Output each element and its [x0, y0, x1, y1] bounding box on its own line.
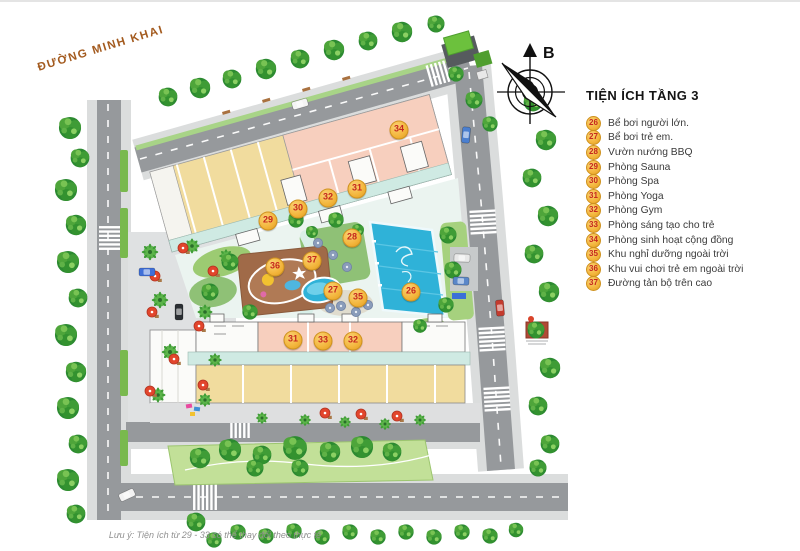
- tree-icon: [426, 529, 441, 544]
- car-icon: [175, 304, 183, 320]
- tree-icon: [223, 70, 242, 89]
- tree-icon: [466, 92, 483, 109]
- legend-label: Phòng sinh hoạt cộng đồng: [608, 235, 733, 246]
- blue-sign: [452, 293, 466, 299]
- tree-icon: [219, 439, 241, 461]
- legend-label: Vườn nướng BBQ: [608, 147, 693, 158]
- tree-icon: [392, 22, 412, 42]
- tree-icon: [159, 88, 178, 107]
- tree-icon: [445, 262, 462, 279]
- legend-badge-27: 27: [586, 130, 601, 145]
- legend-item-32: 32 Phòng Gym: [586, 204, 798, 219]
- legend-item-31: 31 Phòng Yoga: [586, 189, 798, 204]
- palm-tree-icon: [198, 305, 213, 320]
- tree-icon: [288, 212, 303, 227]
- adult-pool: [370, 222, 445, 316]
- tree-icon: [528, 322, 545, 339]
- legend-badge-32: 32: [586, 203, 601, 218]
- blue-umbrella-icon: [336, 301, 345, 310]
- tree-icon: [57, 251, 79, 273]
- legend-badge-31: 31: [586, 189, 601, 204]
- tree-icon: [523, 169, 542, 188]
- tree-icon: [482, 528, 497, 543]
- legend-badge-26: 26: [586, 116, 601, 131]
- tree-icon: [359, 32, 378, 51]
- legend-item-36: 36 Khu vui chơi trẻ em ngoài trời: [586, 262, 798, 277]
- legend-label: Bể bơi người lớn.: [608, 118, 689, 129]
- car-icon: [139, 268, 155, 276]
- tree-icon: [69, 435, 88, 454]
- tree-icon: [55, 179, 77, 201]
- tree-icon: [306, 226, 318, 238]
- legend-item-27: 27 Bể bơi trẻ em.: [586, 131, 798, 146]
- tree-icon: [530, 460, 547, 477]
- median-strip: [120, 208, 128, 258]
- blue-umbrella-icon: [308, 256, 317, 265]
- legend-badge-33: 33: [586, 218, 601, 233]
- legend-label: Đường tản bộ trên cao: [608, 278, 712, 289]
- tree-icon: [509, 523, 523, 537]
- blue-umbrella-icon: [363, 300, 372, 309]
- tree-icon: [69, 289, 88, 308]
- legend-item-29: 29 Phòng Sauna: [586, 160, 798, 175]
- tree-icon: [55, 324, 77, 346]
- legend-badge-29: 29: [586, 160, 601, 175]
- car-icon: [454, 254, 470, 263]
- tree-icon: [383, 443, 402, 462]
- palm-tree-icon: [198, 393, 212, 407]
- blue-umbrella-icon: [344, 237, 353, 246]
- tree-icon: [454, 524, 469, 539]
- tree-icon: [351, 436, 373, 458]
- legend-label: Khu nghỉ dưỡng ngoài trời: [608, 249, 729, 260]
- tree-icon: [283, 436, 307, 460]
- legend-item-28: 28 Vườn nướng BBQ: [586, 145, 798, 160]
- tree-icon: [438, 297, 453, 312]
- tree-icon: [482, 116, 497, 131]
- tree-icon: [190, 448, 210, 468]
- tree-icon: [525, 245, 544, 264]
- tree-icon: [540, 358, 560, 378]
- legend-item-34: 34 Phòng sinh hoạt cộng đồng: [586, 233, 798, 248]
- legend-item-33: 33 Phòng sáng tạo cho trẻ: [586, 218, 798, 233]
- footer-note: Lưu ý: Tiện ích từ 29 - 33 có thể thay đ…: [70, 530, 360, 540]
- legend-label: Phòng Yoga: [608, 191, 664, 202]
- tree-icon: [440, 227, 457, 244]
- median-strip: [120, 430, 128, 466]
- site-plan-map: [0, 0, 580, 551]
- blue-umbrella-icon: [313, 238, 322, 247]
- tree-icon: [320, 442, 340, 462]
- palm-tree-icon: [152, 292, 169, 309]
- legend-label: Phòng sáng tạo cho trẻ: [608, 220, 714, 231]
- legend-badge-37: 37: [586, 276, 601, 291]
- tree-icon: [370, 529, 385, 544]
- legend-badge-28: 28: [586, 145, 601, 160]
- legend-badge-34: 34: [586, 233, 601, 248]
- legend-item-35: 35 Khu nghỉ dưỡng ngoài trời: [586, 247, 798, 262]
- palm-tree-icon: [414, 414, 426, 426]
- legend-label: Bể bơi trẻ em.: [608, 132, 673, 143]
- legend-panel: TIỆN ÍCH TẦNG 3 26 Bể bơi người lớn. 27 …: [586, 88, 798, 291]
- tree-icon: [66, 362, 86, 382]
- car-icon: [461, 127, 470, 144]
- palm-tree-icon: [256, 412, 268, 424]
- median-strip: [120, 350, 128, 396]
- tree-icon: [538, 206, 558, 226]
- tree-icon: [413, 319, 427, 333]
- blue-umbrella-icon: [351, 307, 360, 316]
- palm-tree-icon: [299, 414, 311, 426]
- tree-icon: [59, 117, 81, 139]
- tree-icon: [536, 130, 556, 150]
- legend-item-37: 37 Đường tản bộ trên cao: [586, 277, 798, 292]
- tree-icon: [71, 149, 90, 168]
- page: 3431323029283736273526313332 ĐƯỜNG MINH …: [0, 0, 800, 551]
- tree-icon: [57, 397, 79, 419]
- tree-icon: [202, 284, 219, 301]
- legend-badge-35: 35: [586, 247, 601, 262]
- tree-icon: [256, 59, 276, 79]
- blue-umbrella-icon: [325, 303, 334, 312]
- tree-icon: [428, 16, 445, 33]
- tree-icon: [448, 66, 463, 81]
- tree-icon: [247, 460, 264, 477]
- tree-icon: [352, 224, 364, 236]
- tree-icon: [190, 78, 210, 98]
- legend-item-26: 26 Bể bơi người lớn.: [586, 116, 798, 131]
- tree-icon: [222, 254, 239, 271]
- compass-north-label: B: [543, 45, 555, 62]
- legend-label: Phòng Gym: [608, 205, 662, 216]
- legend-label: Phòng Sauna: [608, 162, 670, 173]
- tree-icon: [529, 397, 548, 416]
- legend-label: Khu vui chơi trẻ em ngoài trời: [608, 264, 743, 275]
- median-strip: [120, 150, 128, 192]
- tree-icon: [324, 40, 344, 60]
- legend-title: TIỆN ÍCH TẦNG 3: [586, 88, 798, 103]
- tree-icon: [57, 469, 79, 491]
- tree-icon: [398, 524, 413, 539]
- legend-item-30: 30 Phòng Spa: [586, 174, 798, 189]
- tree-icon: [291, 50, 310, 69]
- compass-icon: B: [497, 40, 575, 132]
- legend-badge-30: 30: [586, 174, 601, 189]
- tree-icon: [328, 212, 343, 227]
- car-icon: [453, 277, 469, 286]
- palm-tree-icon: [379, 418, 391, 430]
- legend-label: Phòng Spa: [608, 176, 659, 187]
- blue-umbrella-icon: [328, 250, 337, 259]
- tree-icon: [541, 435, 560, 454]
- tree-icon: [67, 505, 86, 524]
- tree-icon: [292, 460, 309, 477]
- palm-tree-icon: [142, 244, 159, 261]
- tree-icon: [187, 513, 206, 532]
- palm-tree-icon: [208, 353, 222, 367]
- tree-icon: [539, 282, 559, 302]
- blue-umbrella-icon: [342, 262, 351, 271]
- terrace-walk: [150, 403, 480, 423]
- tree-icon: [242, 304, 257, 319]
- palm-tree-icon: [339, 416, 351, 428]
- car-icon: [495, 300, 504, 317]
- tree-icon: [66, 215, 86, 235]
- legend-badge-36: 36: [586, 262, 601, 277]
